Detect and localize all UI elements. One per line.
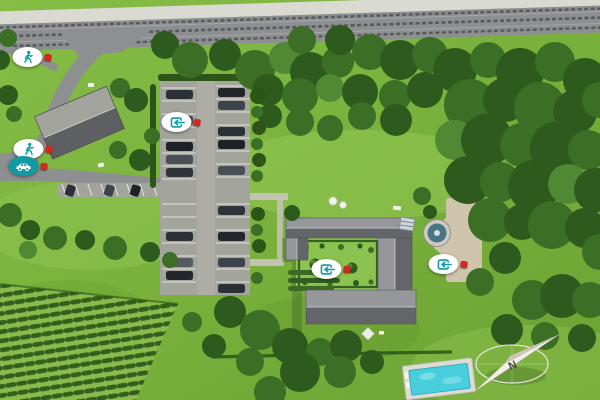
fountain bbox=[424, 220, 451, 247]
rooftop-skylight bbox=[399, 217, 415, 231]
east-entry-marker[interactable] bbox=[429, 254, 468, 274]
parking-entry-marker[interactable] bbox=[162, 112, 201, 132]
site-plan: N bbox=[0, 0, 600, 400]
pedestrian-icon bbox=[20, 50, 35, 65]
red-pin bbox=[193, 118, 201, 126]
site-plan-canvas: N bbox=[0, 0, 600, 400]
pedestrian-access-north-marker[interactable] bbox=[13, 47, 52, 67]
entry-icon bbox=[435, 258, 452, 271]
car-icon bbox=[15, 161, 33, 172]
pedestrian-icon bbox=[21, 142, 36, 157]
courtyard-entry-marker[interactable] bbox=[312, 259, 351, 279]
vehicle-access-west-marker[interactable] bbox=[9, 156, 48, 176]
entry-badge bbox=[429, 254, 459, 274]
vehicle-badge bbox=[9, 156, 39, 176]
building-wing-north bbox=[286, 218, 412, 238]
entry-badge bbox=[162, 112, 192, 132]
red-pin bbox=[40, 162, 48, 170]
red-pin bbox=[343, 265, 351, 273]
building-wing-west bbox=[286, 238, 308, 260]
entry-icon bbox=[168, 116, 185, 129]
entry-badge bbox=[312, 259, 342, 279]
red-pin bbox=[460, 260, 468, 268]
pedestrian-badge bbox=[13, 47, 43, 67]
red-pin bbox=[45, 145, 53, 153]
building-wing-south bbox=[306, 290, 416, 324]
red-pin bbox=[44, 53, 52, 61]
entry-icon bbox=[318, 263, 335, 276]
